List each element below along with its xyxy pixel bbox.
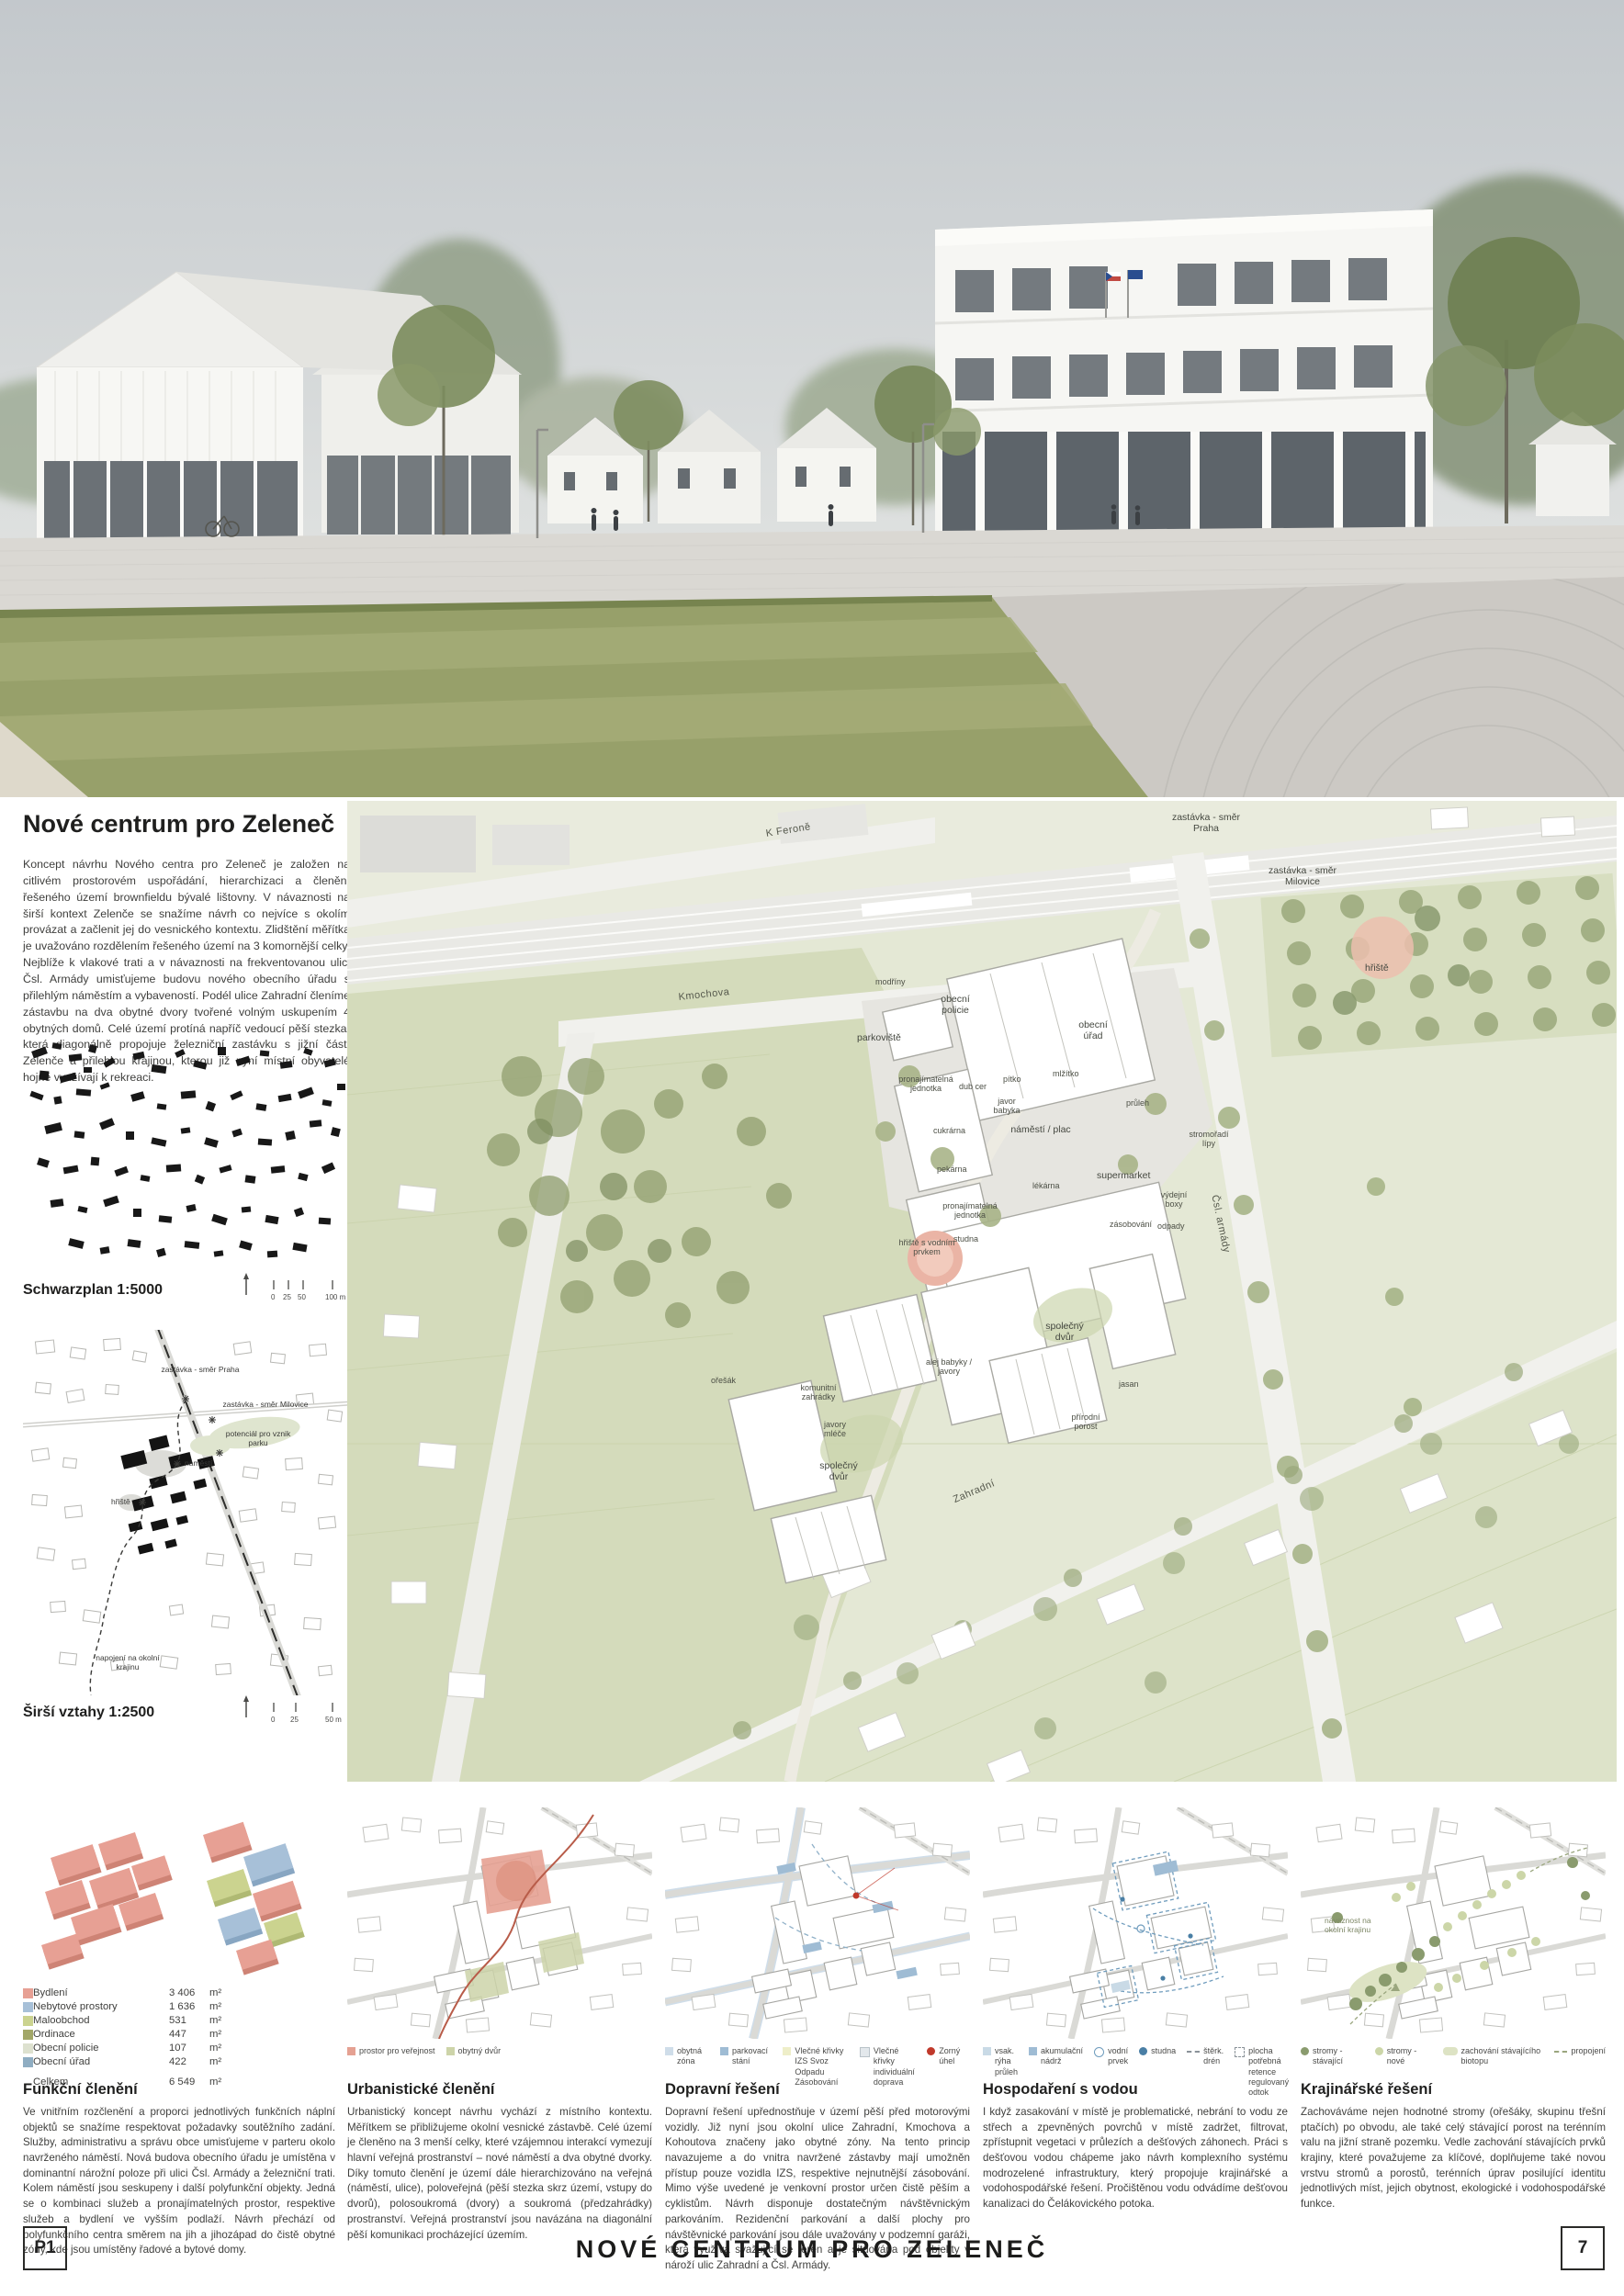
masterplan-map (347, 801, 1617, 1782)
plan-label: komunitní zahrádky (794, 1383, 843, 1402)
legend-row: Obecní policie107m² (23, 2043, 335, 2054)
dopravni-panel: obytná zóna parkovací stání Vlečné křivk… (665, 1807, 970, 2088)
plan-label: obecní úřad (1071, 1019, 1115, 1041)
funkcni-legend: Bydlení3 406m² Nebytové prostory1 636m² … (23, 1987, 335, 2088)
hospodareni-diagram (983, 1807, 1288, 2039)
plan-label: modříny (875, 977, 906, 986)
svg-text:100 m: 100 m (325, 1293, 346, 1301)
plan-label: zastávka - směr Praha (1169, 812, 1243, 834)
krajinarske-legend: stromy - stávající stromy - nové zachová… (1301, 2046, 1606, 2067)
page-number-badge: 7 (1561, 2226, 1605, 2270)
propojeni-swatch (1554, 2051, 1567, 2054)
legend-item: stromy - nové (1375, 2046, 1432, 2067)
plan-label: javor babyka (988, 1097, 1025, 1116)
plan-label: pekárna (937, 1165, 967, 1174)
plan-label: dub cer (959, 1082, 987, 1091)
plan-label: javory mléče (816, 1420, 854, 1439)
schwarzplan-caption: Schwarzplan 1:5000 (23, 1282, 163, 1299)
section-heading: Funkční členění (23, 2081, 335, 2099)
section-heading: Dopravní řešení (665, 2081, 970, 2099)
color-swatch (23, 2030, 33, 2040)
retence-swatch (1235, 2047, 1245, 2057)
plan-label: přírodní porost (1060, 1412, 1111, 1432)
section-paragraph: Urbanistický koncept návrhu vychází z mí… (347, 2105, 652, 2243)
zorny-uhel-dot (927, 2047, 935, 2055)
section-heading: Urbanistické členění (347, 2081, 652, 2099)
funkcni-axon-diagram (23, 1807, 326, 1978)
funkcni-section: Bydlení3 406m² Nebytové prostory1 636m² … (23, 1807, 335, 2090)
section-heading: Krajinářské řešení (1301, 2081, 1606, 2099)
legend-row: Bydlení3 406m² (23, 1987, 335, 1998)
color-swatch (23, 2043, 33, 2054)
hospodareni-panel: vsak. rýha průleh akumulační nádrž vodní… (983, 1807, 1288, 2098)
legend-item: obytná zóna (665, 2046, 709, 2067)
hero-render (0, 0, 1624, 797)
color-swatch (720, 2047, 728, 2055)
section-paragraph: I když zasakování v místě je problematic… (983, 2105, 1288, 2212)
krajinarske-note: návaznost na okolní krajinu (1325, 1916, 1382, 1934)
color-swatch (1301, 2047, 1309, 2055)
plan-label: zastávka - směr Milovice (1261, 865, 1344, 887)
krajinarske-text: Krajinářské řešení Zachováváme nejen hod… (1301, 2081, 1606, 2212)
hospodareni-text: Hospodaření s vodou I když zasakování v … (983, 2081, 1288, 2212)
section-paragraph: Zachováváme nejen hodnotné stromy (ořešá… (1301, 2105, 1606, 2212)
legend-item: studna (1139, 2046, 1176, 2056)
plan-label: pronajímatelná jednotka (941, 1201, 999, 1221)
plan-label: supermarket (1097, 1170, 1150, 1181)
plan-label: obecní policie (931, 994, 979, 1016)
sirsi-label: zastávka - směr Milovice (221, 1400, 310, 1409)
funkcni-text: Funkční členění Ve vnitřním rozčlenění a… (23, 2081, 335, 2258)
plan-label: hřiště s vodním prvkem (895, 1238, 959, 1257)
urbanisticke-panel: prostor pro veřejnost obytný dvůr (347, 1807, 652, 2056)
legend-row: Nebytové prostory1 636m² (23, 2001, 335, 2012)
color-swatch (860, 2047, 870, 2057)
color-swatch (23, 1988, 33, 1998)
color-swatch (783, 2047, 791, 2055)
render-centre-houses (547, 408, 876, 523)
legend-row: Maloobchod531m² (23, 2015, 335, 2026)
legend-item: zachování stávajícího biotopu (1443, 2046, 1544, 2067)
sirsi-label: zastávka - směr Praha (161, 1365, 240, 1374)
sirsi-label: hřiště (111, 1497, 130, 1506)
urbanisticke-legend: prostor pro veřejnost obytný dvůr (347, 2046, 652, 2056)
plan-label: náměstí / plac (1001, 1124, 1080, 1135)
urbanisticke-diagram (347, 1807, 652, 2039)
sirsi-label: napojení na okolní krajinu (95, 1653, 161, 1671)
color-swatch (23, 2016, 33, 2026)
plan-label: zásobování (1110, 1220, 1152, 1229)
legend-row: Obecní úřad422m² (23, 2056, 335, 2067)
plan-label: mlžítko (1053, 1069, 1079, 1078)
color-swatch (1443, 2047, 1458, 2055)
plan-label: společný dvůr (1042, 1321, 1088, 1343)
plan-label: studna (953, 1234, 978, 1244)
svg-text:50 m: 50 m (325, 1716, 342, 1724)
plan-label: společný dvůr (816, 1460, 862, 1482)
dren-swatch (1187, 2051, 1200, 2054)
color-swatch (665, 2047, 673, 2055)
color-swatch (1029, 2047, 1037, 2055)
color-swatch (347, 2047, 355, 2055)
color-swatch (23, 2002, 33, 2012)
sirsi-scalebar: 02550 m (241, 1694, 351, 1725)
color-swatch (446, 2047, 455, 2055)
dopravni-diagram (665, 1807, 970, 2039)
schwarzplan-scalebar: 02550100 m (241, 1271, 351, 1302)
studna-swatch (1139, 2047, 1147, 2055)
legend-item: propojení (1554, 2046, 1606, 2056)
legend-row: Ordinace447m² (23, 2029, 335, 2040)
schwarzplan-figure (23, 1036, 350, 1273)
color-swatch (983, 2047, 991, 2055)
footer-title: NOVÉ CENTRUM PRO ZELENEČ (0, 2235, 1624, 2264)
svg-text:25: 25 (283, 1293, 291, 1301)
presentation-board: Nové centrum pro Zeleneč Koncept návrhu … (0, 0, 1624, 2296)
color-swatch (23, 2057, 33, 2067)
vodni-prvek-swatch (1094, 2047, 1104, 2057)
plan-label: pronajímatelná jednotka (897, 1075, 955, 1094)
sirsi-map (23, 1330, 350, 1695)
render-illustration (0, 0, 1624, 797)
sirsi-label: potenciál pro vznik parku (220, 1429, 297, 1447)
masterplan: K Feroně zastávka - směr Praha zastávka … (347, 801, 1617, 1782)
legend-item: prostor pro veřejnost (347, 2046, 435, 2056)
legend-item: vsak. rýha průleh (983, 2046, 1018, 2077)
urbanisticke-text: Urbanistické členění Urbanistický koncep… (347, 2081, 652, 2243)
svg-text:25: 25 (290, 1716, 299, 1724)
render-right-building (935, 209, 1433, 551)
krajinarske-panel: návaznost na okolní krajinu stromy - stá… (1301, 1807, 1606, 2067)
legend-item: parkovací stání (720, 2046, 772, 2067)
svg-text:0: 0 (271, 1293, 276, 1301)
legend-item: štěrk. drén (1187, 2046, 1224, 2067)
plan-label: jasan (1119, 1379, 1139, 1389)
plan-label: lékárna (1032, 1181, 1060, 1190)
color-swatch (1375, 2047, 1383, 2055)
plan-label: cukrárna (933, 1126, 965, 1135)
plan-label: výdejní boxy (1152, 1190, 1196, 1210)
plan-label: alej babyky / javory (922, 1357, 976, 1377)
plan-label: ořešák (711, 1376, 736, 1385)
legend-item: akumulační nádrž (1029, 2046, 1083, 2067)
sirsi-label: náměstí (185, 1458, 212, 1468)
schwarzplan-map (23, 1036, 350, 1273)
svg-text:50: 50 (298, 1293, 306, 1301)
plan-label: odpady (1157, 1221, 1185, 1231)
page-title: Nové centrum pro Zeleneč (23, 810, 350, 838)
sirsi-caption: Širší vztahy 1:2500 (23, 1705, 154, 1721)
legend-item: Zorný úhel (927, 2046, 970, 2067)
plan-label: parkoviště (857, 1032, 901, 1043)
plan-label: pítko (1003, 1075, 1021, 1084)
legend-item: stromy - stávající (1301, 2046, 1364, 2067)
section-heading: Hospodaření s vodou (983, 2081, 1288, 2099)
plan-label: průleh (1126, 1098, 1149, 1108)
legend-item: vodní prvek (1094, 2046, 1128, 2067)
legend-item: obytný dvůr (446, 2046, 502, 2056)
svg-text:0: 0 (271, 1716, 276, 1724)
sirsi-vztahy-figure: zastávka - směr Praha zastávka - směr Mi… (23, 1330, 350, 1695)
plan-label: stromořadí lípy (1185, 1130, 1233, 1149)
plan-label: hřiště (1365, 962, 1389, 974)
